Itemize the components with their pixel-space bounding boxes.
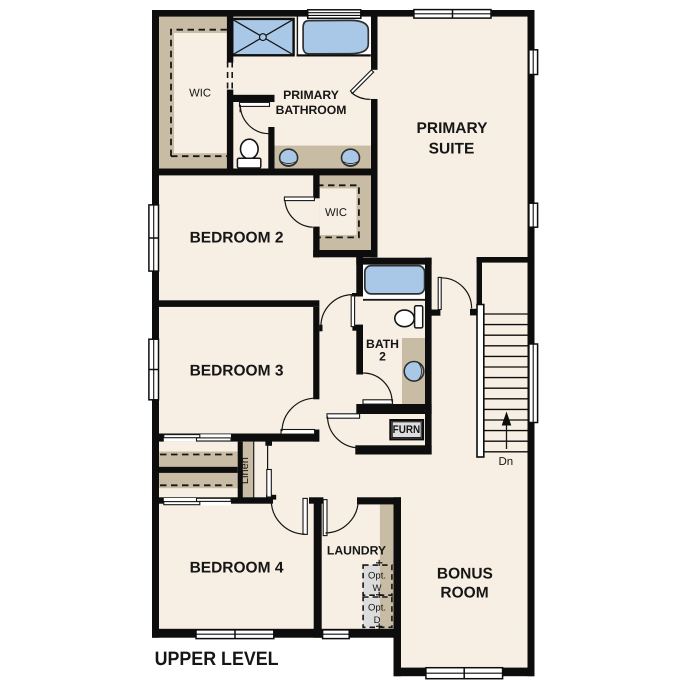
svg-text:BEDROOM 2: BEDROOM 2 <box>190 229 284 246</box>
svg-text:WIC: WIC <box>189 88 211 100</box>
svg-text:2: 2 <box>379 349 386 363</box>
svg-text:ROOM: ROOM <box>440 585 488 602</box>
svg-text:SUITE: SUITE <box>429 141 475 158</box>
svg-text:WIC: WIC <box>325 207 347 219</box>
svg-text:Opt.: Opt. <box>368 571 386 582</box>
svg-text:Dn: Dn <box>498 456 513 468</box>
svg-text:Opt.: Opt. <box>368 603 386 614</box>
svg-text:BATHROOM: BATHROOM <box>276 103 347 117</box>
svg-text:PRIMARY: PRIMARY <box>283 88 339 102</box>
svg-text:LAUNDRY: LAUNDRY <box>327 544 386 558</box>
svg-text:UPPER LEVEL: UPPER LEVEL <box>155 648 279 670</box>
svg-text:BONUS: BONUS <box>437 565 493 582</box>
svg-text:PRIMARY: PRIMARY <box>417 120 489 137</box>
svg-text:BEDROOM 3: BEDROOM 3 <box>190 362 284 379</box>
svg-text:BEDROOM 4: BEDROOM 4 <box>190 560 284 577</box>
svg-text:FURN: FURN <box>393 424 421 436</box>
svg-text:W: W <box>373 583 382 594</box>
